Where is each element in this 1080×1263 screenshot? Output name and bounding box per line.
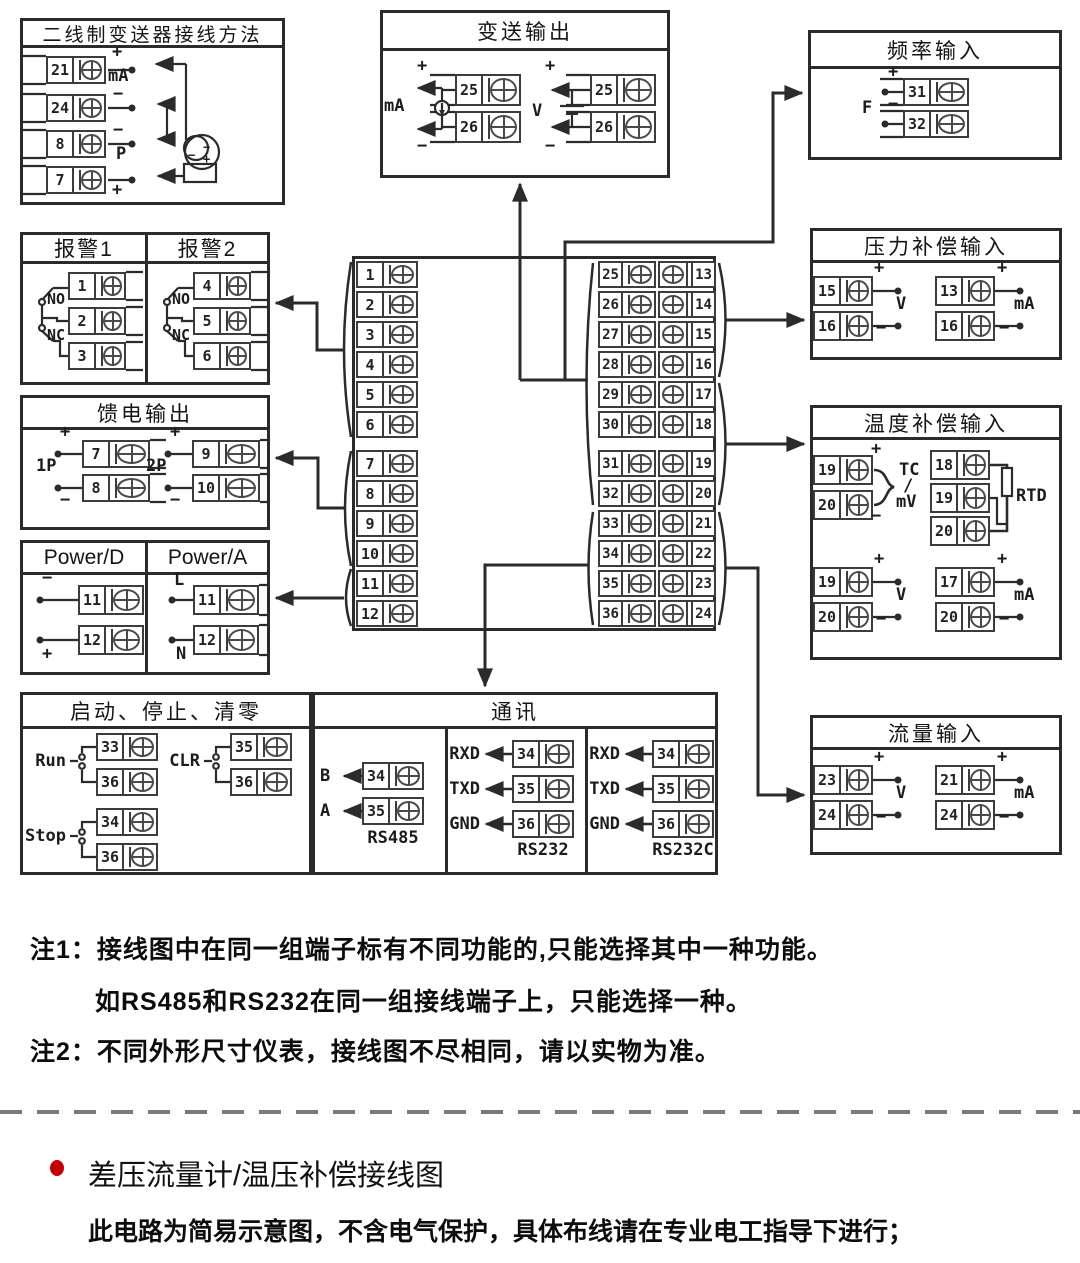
wiring-diagram-page: 二线制变送器接线方法 21 24 8 7 + mA − − P + − − + … <box>0 0 1080 1263</box>
screw-icon <box>628 454 652 473</box>
screw-icon <box>628 484 652 503</box>
terminal-36-rs232: 36 <box>512 810 574 838</box>
terminal-separator <box>72 168 77 192</box>
terminal-separator <box>956 485 961 511</box>
terminal-separator <box>839 767 844 793</box>
note-1-line-1: 注1：接线图中在同一组端子标有不同功能的,只能选择其中一种功能。 <box>30 930 833 966</box>
terminal-7-feed: 7 <box>82 440 150 468</box>
terminal-separator <box>382 323 387 346</box>
terminal-11-dc: 11 <box>78 585 144 615</box>
minus-label: − <box>170 492 180 509</box>
terminal-36-run: 36 <box>96 768 158 796</box>
note-2: 注2：不同外形尺寸仪表，接线图不尽相同，请以实物为准。 <box>30 1032 721 1068</box>
terminal-number: 25 <box>457 76 481 104</box>
screw-icon <box>968 571 991 593</box>
plus-label: + <box>997 551 1007 568</box>
terminal-number: 36 <box>514 812 538 836</box>
screw-icon <box>101 276 122 296</box>
minus-label: − <box>999 320 1009 337</box>
terminal-16: 16 <box>935 311 995 341</box>
terminal-separator <box>621 452 626 475</box>
f-label: F <box>862 100 872 117</box>
terminal-separator <box>481 113 486 141</box>
minus-label: − <box>876 611 886 628</box>
terminal-number: 34 <box>600 542 621 565</box>
terminal-separator <box>104 587 109 613</box>
terminal-separator <box>621 323 626 346</box>
terminal-15: 15 <box>658 321 716 348</box>
terminal-19: 19 <box>658 450 716 477</box>
screw-icon <box>846 606 869 628</box>
screw-icon <box>662 604 684 623</box>
box-title: 二线制变送器接线方法 <box>23 21 282 48</box>
terminal-7: 7 <box>356 450 418 477</box>
screw-icon <box>79 98 102 118</box>
terminal-separator <box>621 263 626 286</box>
terminal-number: 32 <box>905 112 929 136</box>
screw-icon <box>963 454 986 476</box>
terminal-35-rs232: 35 <box>512 775 574 803</box>
screw-icon <box>389 454 414 473</box>
terminal-3: 3 <box>68 342 126 370</box>
neutral-label: N <box>176 646 186 663</box>
terminal-separator <box>678 812 683 836</box>
terminal-separator <box>219 627 224 653</box>
plus-label: + <box>888 64 898 81</box>
terminal-13: 13 <box>658 261 716 288</box>
terminal-24: 24 <box>935 800 995 830</box>
terminal-separator <box>956 452 961 478</box>
terminal-number: 33 <box>98 735 122 759</box>
screw-icon <box>685 779 710 799</box>
terminal-separator <box>256 735 261 759</box>
terminal-number: 22 <box>691 542 714 565</box>
terminal-36-clr: 36 <box>230 768 292 796</box>
terminal-separator <box>72 96 77 120</box>
terminal-number: 6 <box>358 413 382 436</box>
terminal-separator <box>382 602 387 625</box>
terminal-number: 26 <box>457 113 481 141</box>
terminal-number: 5 <box>358 383 382 406</box>
screw-icon <box>968 606 991 628</box>
screw-icon <box>623 115 652 139</box>
terminal-separator <box>538 812 543 836</box>
terminal-separator <box>929 80 934 104</box>
terminal-separator <box>219 274 224 298</box>
screw-icon <box>545 779 570 799</box>
terminal-11-ac: 11 <box>193 585 259 615</box>
screw-icon <box>389 574 414 593</box>
terminal-number: 19 <box>815 457 839 483</box>
plus-label: + <box>42 646 52 663</box>
screw-icon <box>389 295 414 314</box>
terminal-number: 12 <box>358 602 382 625</box>
minus-label: − <box>113 122 123 139</box>
terminal-number: 19 <box>815 569 839 595</box>
minus-label: − <box>888 96 898 113</box>
rxd-label: RXD <box>576 746 620 763</box>
terminal-separator <box>72 58 77 82</box>
terminal-separator <box>621 542 626 565</box>
nc-label: NC <box>47 328 65 343</box>
ma-label: mA <box>1014 296 1034 313</box>
screw-icon <box>963 487 986 509</box>
terminal-17: 17 <box>658 381 716 408</box>
terminal-number: 35 <box>514 777 538 801</box>
ma-label: mA <box>1014 587 1034 604</box>
terminal-number: 13 <box>691 263 714 286</box>
alarm2-title: 报警2 <box>148 235 267 264</box>
terminal-5: 5 <box>356 381 418 408</box>
screw-icon <box>628 355 652 374</box>
minus-label: − <box>42 570 52 587</box>
terminal-separator <box>94 344 99 368</box>
terminal-number: 33 <box>600 512 621 535</box>
terminal-4: 4 <box>356 351 418 378</box>
screw-icon <box>662 265 684 284</box>
terminal-separator <box>621 572 626 595</box>
minus-label: − <box>60 492 70 509</box>
screw-icon <box>129 772 154 792</box>
terminal-separator <box>621 293 626 316</box>
terminal-number: 24 <box>691 602 714 625</box>
terminal-17-ma: 17 <box>935 567 995 597</box>
terminal-number: 34 <box>654 742 678 766</box>
terminal-number: 27 <box>600 323 621 346</box>
terminal-number: 21 <box>937 767 961 793</box>
terminal-separator <box>382 293 387 316</box>
screw-icon <box>628 265 652 284</box>
terminal-number: 12 <box>80 627 104 653</box>
terminal-number: 17 <box>691 383 714 406</box>
screw-icon <box>226 311 247 331</box>
terminal-8: 8 <box>356 480 418 507</box>
box-title: 频率输入 <box>811 33 1059 69</box>
no-label: NO <box>47 292 65 307</box>
terminal-separator <box>678 742 683 766</box>
terminal-separator <box>388 799 393 823</box>
note-1-line-2: 如RS485和RS232在同一组接线端子上，只能选择一种。 <box>95 982 752 1018</box>
terminal-12-ac: 12 <box>193 625 259 655</box>
plus-label: + <box>60 424 70 441</box>
terminal-number: 8 <box>48 132 72 156</box>
screw-icon <box>389 355 414 374</box>
screw-icon <box>846 769 869 791</box>
terminal-26: 26 <box>598 291 656 318</box>
terminal-separator <box>621 383 626 406</box>
terminal-number: 24 <box>48 96 72 120</box>
terminal-number: 21 <box>48 58 72 82</box>
screw-icon <box>662 454 684 473</box>
plus-label: + <box>874 551 884 568</box>
terminal-separator <box>839 457 844 483</box>
screw-icon <box>628 574 652 593</box>
terminal-separator <box>256 770 261 794</box>
terminal-separator <box>538 777 543 801</box>
transmitter-plus: + <box>203 153 210 165</box>
terminal-number: 9 <box>194 442 218 466</box>
terminal-number: 20 <box>815 492 839 518</box>
terminal-33-run: 33 <box>96 733 158 761</box>
terminal-number: 16 <box>691 353 714 376</box>
plus-label: + <box>417 58 427 75</box>
terminal-20-ma: 20 <box>935 602 995 632</box>
a-label: A <box>320 803 330 820</box>
terminal-number: 4 <box>358 353 382 376</box>
minus-label: − <box>545 138 555 155</box>
terminal-number: 8 <box>84 476 108 500</box>
screw-icon <box>226 276 247 296</box>
terminal-separator <box>961 802 966 828</box>
terminal-number: 18 <box>932 452 956 478</box>
screw-icon <box>389 325 414 344</box>
terminal-20-rtd: 20 <box>930 516 990 546</box>
terminal-number: 20 <box>815 604 839 630</box>
rs232c-caption: RS232C <box>644 842 722 859</box>
screw-icon <box>226 346 247 366</box>
terminal-8: 8 <box>46 130 106 158</box>
terminal-separator <box>219 344 224 368</box>
screw-icon <box>545 744 570 764</box>
terminal-number: 34 <box>98 810 122 834</box>
terminal-24: 24 <box>813 800 873 830</box>
terminal-separator <box>382 482 387 505</box>
box-title: 流量输入 <box>813 718 1059 750</box>
terminal-25-ma: 25 <box>455 74 521 106</box>
terminal-number: 16 <box>937 313 961 339</box>
terminal-35: 35 <box>598 570 656 597</box>
terminal-number: 17 <box>937 569 961 595</box>
terminal-separator <box>108 476 113 500</box>
screw-icon <box>685 744 710 764</box>
terminal-separator <box>839 802 844 828</box>
minus-label: − <box>876 809 886 826</box>
1p-label: 1P <box>36 458 56 475</box>
screw-icon <box>846 459 869 481</box>
terminal-number: 15 <box>691 323 714 346</box>
alarm1-title: 报警1 <box>23 235 145 264</box>
minus-label: − <box>876 320 886 337</box>
plus-label: + <box>874 260 884 277</box>
terminal-number: 7 <box>84 442 108 466</box>
screw-icon <box>115 478 146 498</box>
box-title: 压力补偿输入 <box>813 231 1059 263</box>
screw-icon <box>662 574 684 593</box>
screw-icon <box>225 444 256 464</box>
rs485-caption: RS485 <box>358 830 428 847</box>
terminal-25-v: 25 <box>590 74 656 106</box>
terminal-number: 26 <box>592 113 616 141</box>
terminal-30: 30 <box>598 411 656 438</box>
terminal-separator <box>218 442 223 466</box>
plus-label: + <box>871 441 881 458</box>
terminal-number: 32 <box>600 482 621 505</box>
screw-icon <box>101 346 122 366</box>
ma-label: mA <box>384 98 404 115</box>
screw-icon <box>263 737 288 757</box>
screw-icon <box>129 847 154 867</box>
terminal-number: 23 <box>691 572 714 595</box>
terminal-number: 36 <box>600 602 621 625</box>
terminal-26-v: 26 <box>590 111 656 143</box>
terminal-number: 1 <box>70 274 94 298</box>
terminal-16: 16 <box>813 311 873 341</box>
screw-icon <box>662 544 684 563</box>
screw-icon <box>129 737 154 757</box>
terminal-number: 35 <box>600 572 621 595</box>
terminal-5: 5 <box>193 307 251 335</box>
terminal-number: 20 <box>932 518 956 544</box>
screw-icon <box>389 415 414 434</box>
terminal-18-rtd: 18 <box>930 450 990 480</box>
rs232-caption: RS232 <box>508 842 578 859</box>
screw-icon <box>936 82 965 102</box>
terminal-number: 28 <box>600 353 621 376</box>
screw-icon <box>628 514 652 533</box>
screw-icon <box>395 801 420 821</box>
terminal-number: 5 <box>195 309 219 333</box>
terminal-number: 34 <box>514 742 538 766</box>
terminal-separator <box>621 602 626 625</box>
terminal-21: 21 <box>46 56 106 84</box>
terminal-10-feed: 10 <box>192 474 260 502</box>
terminal-4: 4 <box>193 272 251 300</box>
nc-label: NC <box>172 328 190 343</box>
terminal-number: 6 <box>195 344 219 368</box>
terminal-separator <box>839 313 844 339</box>
screw-icon <box>846 315 869 337</box>
terminal-19-rtd: 19 <box>930 483 990 513</box>
screw-icon <box>968 769 991 791</box>
terminal-separator <box>961 604 966 630</box>
screw-icon <box>968 804 991 826</box>
plus-label: + <box>545 58 555 75</box>
screw-icon <box>225 478 256 498</box>
screw-icon <box>545 814 570 834</box>
terminal-number: 13 <box>937 278 961 304</box>
terminal-number: 24 <box>815 802 839 828</box>
terminal-6: 6 <box>193 342 251 370</box>
terminal-number: 36 <box>98 845 122 869</box>
terminal-1: 1 <box>356 261 418 288</box>
screw-icon <box>389 544 414 563</box>
minus-label: − <box>417 138 427 155</box>
terminal-6: 6 <box>356 411 418 438</box>
footer-subtext: 此电路为简易示意图，不含电气保护，具体布线请在专业电工指导下进行； <box>88 1212 913 1248</box>
terminal-number: 10 <box>194 476 218 500</box>
dashed-separator <box>0 1110 1080 1114</box>
txd-label: TXD <box>576 781 620 798</box>
screw-icon <box>395 766 420 786</box>
terminal-number: 10 <box>358 542 382 565</box>
terminal-separator <box>382 572 387 595</box>
terminal-separator <box>481 76 486 104</box>
b-label: B <box>320 768 330 785</box>
terminal-separator <box>621 353 626 376</box>
terminal-separator <box>839 492 844 518</box>
screw-icon <box>79 170 102 190</box>
terminal-21: 21 <box>658 510 716 537</box>
terminal-number: 35 <box>654 777 678 801</box>
v-label: V <box>896 296 906 313</box>
terminal-24: 24 <box>46 94 106 122</box>
terminal-separator <box>839 604 844 630</box>
terminal-12: 12 <box>356 600 418 627</box>
terminal-19-v: 19 <box>813 567 873 597</box>
plus-label: + <box>170 424 180 441</box>
terminal-29: 29 <box>598 381 656 408</box>
screw-icon <box>628 604 652 623</box>
terminal-number: 25 <box>592 76 616 104</box>
v-label: V <box>896 785 906 802</box>
terminal-8-feed: 8 <box>82 474 150 502</box>
terminal-20: 20 <box>658 480 716 507</box>
terminal-34: 34 <box>598 540 656 567</box>
terminal-36-stop: 36 <box>96 843 158 871</box>
no-label: NO <box>172 292 190 307</box>
terminal-separator <box>104 627 109 653</box>
screw-icon <box>846 280 869 302</box>
screw-icon <box>685 814 710 834</box>
terminal-number: 11 <box>195 587 219 613</box>
terminal-2: 2 <box>356 291 418 318</box>
rtd-label: RTD <box>1016 488 1047 505</box>
line-label: L <box>174 572 184 589</box>
screw-icon <box>662 514 684 533</box>
terminal-number: 12 <box>195 627 219 653</box>
terminal-separator <box>956 518 961 544</box>
screw-icon <box>389 265 414 284</box>
terminal-separator <box>621 413 626 436</box>
screw-icon <box>115 444 146 464</box>
terminal-number: 11 <box>358 572 382 595</box>
box-title: 通讯 <box>315 695 715 729</box>
terminal-number: 21 <box>691 512 714 535</box>
run-label: Run <box>26 753 66 770</box>
screw-icon <box>846 804 869 826</box>
2p-label: 2P <box>146 458 166 475</box>
terminal-separator <box>382 263 387 286</box>
terminal-9: 9 <box>356 510 418 537</box>
terminal-number: 19 <box>932 485 956 511</box>
terminal-31: 31 <box>903 78 969 106</box>
screw-icon <box>662 385 684 404</box>
ma-label: mA <box>1014 785 1034 802</box>
txd-label: TXD <box>436 781 480 798</box>
screw-icon <box>662 355 684 374</box>
terminal-9-feed: 9 <box>192 440 260 468</box>
terminal-32: 32 <box>598 480 656 507</box>
terminal-separator <box>108 442 113 466</box>
terminal-separator <box>382 452 387 475</box>
screw-icon <box>488 115 517 139</box>
screw-icon <box>662 325 684 344</box>
terminal-separator <box>122 735 127 759</box>
terminal-13: 13 <box>935 276 995 306</box>
terminal-number: 3 <box>70 344 94 368</box>
terminal-separator <box>678 777 683 801</box>
terminal-23: 23 <box>813 765 873 795</box>
ma-label: mA <box>108 68 128 85</box>
minus-label: − <box>999 809 1009 826</box>
terminal-number: 15 <box>815 278 839 304</box>
screw-icon <box>263 772 288 792</box>
terminal-number: 11 <box>80 587 104 613</box>
terminal-separator <box>122 810 127 834</box>
terminal-28: 28 <box>598 351 656 378</box>
screw-icon <box>79 134 102 154</box>
terminal-number: 36 <box>232 770 256 794</box>
